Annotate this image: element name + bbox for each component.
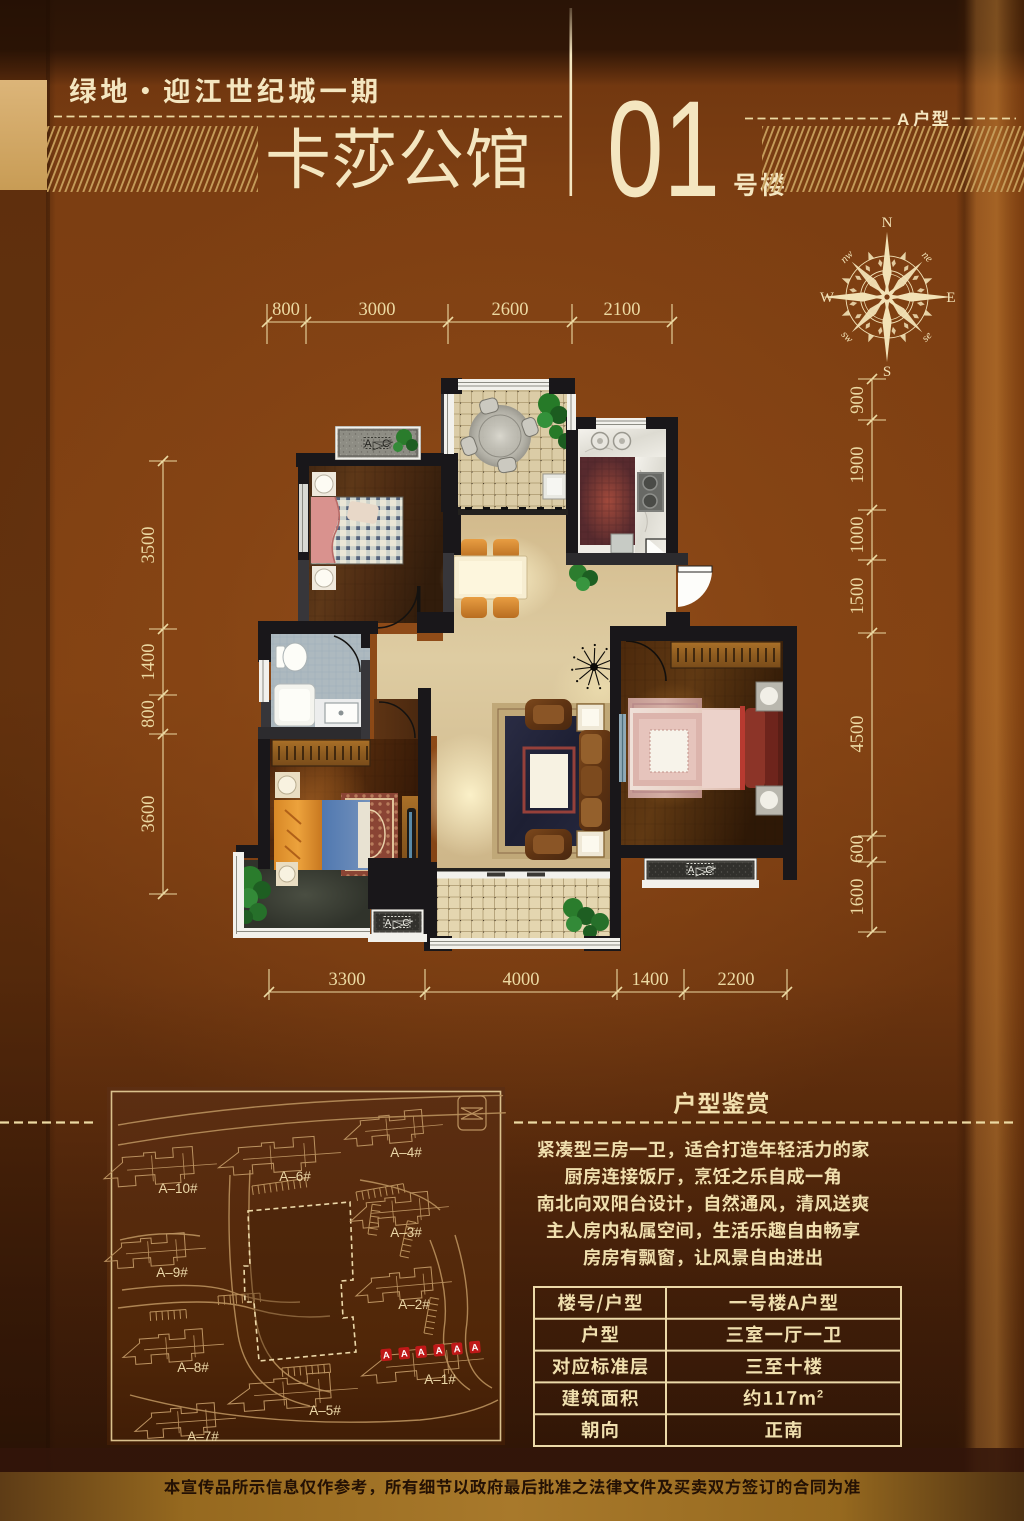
svg-text:2600: 2600 <box>492 300 529 320</box>
svg-text:1900: 1900 <box>848 447 868 484</box>
svg-text:1400: 1400 <box>139 644 159 681</box>
svg-text:A: A <box>435 1345 443 1357</box>
svg-text:800: 800 <box>139 700 159 728</box>
svg-text:A–3#: A–3# <box>390 1225 422 1240</box>
svg-text:600: 600 <box>848 835 868 863</box>
svg-text:A–4#: A–4# <box>390 1145 422 1160</box>
svg-text:W: W <box>820 290 835 306</box>
svg-text:1400: 1400 <box>632 970 669 990</box>
svg-text:A–9#: A–9# <box>156 1265 188 1280</box>
svg-text:1500: 1500 <box>848 578 868 615</box>
svg-text:A–5#: A–5# <box>309 1403 341 1418</box>
svg-text:3000: 3000 <box>359 300 396 320</box>
svg-text:N: N <box>882 215 893 231</box>
svg-text:1600: 1600 <box>848 879 868 916</box>
svg-text:A–6#: A–6# <box>279 1169 311 1184</box>
svg-text:A: A <box>400 1348 408 1360</box>
svg-text:800: 800 <box>272 300 300 320</box>
svg-text:1000: 1000 <box>848 517 868 554</box>
svg-text:A: A <box>417 1347 425 1359</box>
svg-text:A–10#: A–10# <box>158 1181 198 1196</box>
svg-text:2: 2 <box>817 1388 823 1400</box>
svg-text:A: A <box>382 1350 390 1362</box>
svg-text:900: 900 <box>848 386 868 414</box>
svg-text:4000: 4000 <box>503 970 540 990</box>
svg-text:2200: 2200 <box>718 970 755 990</box>
svg-text:E: E <box>946 290 955 306</box>
svg-text:3600: 3600 <box>139 796 159 833</box>
svg-text:A–2#: A–2# <box>398 1297 430 1312</box>
svg-text:3300: 3300 <box>329 970 366 990</box>
svg-text:4500: 4500 <box>848 716 868 753</box>
svg-text:A: A <box>471 1342 479 1354</box>
svg-text:A–1#: A–1# <box>424 1372 456 1387</box>
svg-text:2100: 2100 <box>604 300 641 320</box>
svg-text:S: S <box>883 364 891 380</box>
svg-text:01: 01 <box>607 73 720 226</box>
svg-text:A: A <box>453 1344 461 1356</box>
svg-text:A–8#: A–8# <box>177 1360 209 1375</box>
svg-text:3500: 3500 <box>139 527 159 564</box>
svg-text:A–7#: A–7# <box>187 1429 219 1444</box>
